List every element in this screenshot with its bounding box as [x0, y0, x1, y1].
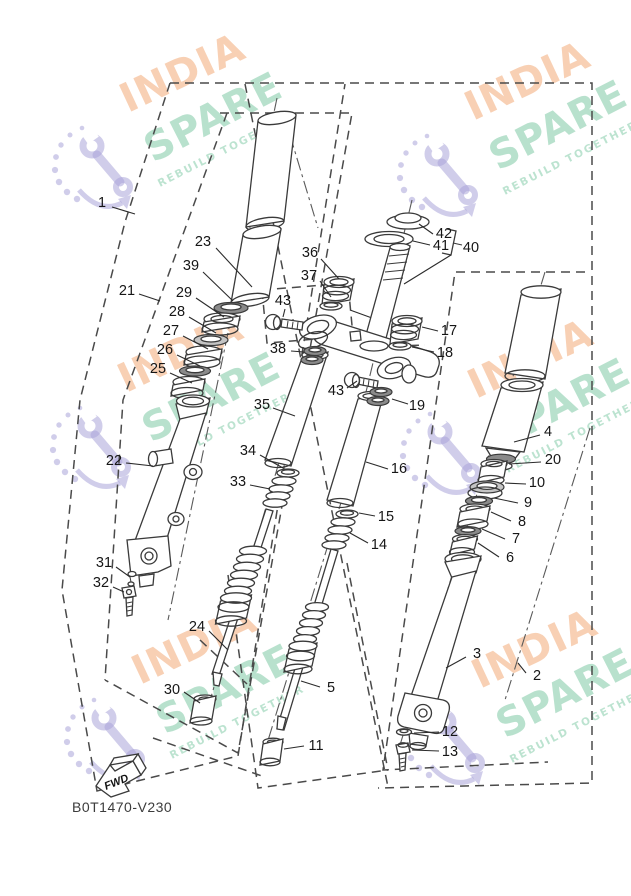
- callout-23: 23: [195, 234, 211, 250]
- callout-3: 3: [473, 646, 481, 662]
- leader-line-9: [494, 498, 518, 503]
- callout-37: 37: [301, 268, 317, 284]
- callout-29: 29: [176, 285, 192, 301]
- callout-33: 33: [230, 474, 246, 490]
- callout-12: 12: [442, 724, 458, 740]
- callout-20: 20: [545, 452, 561, 468]
- leader-line-14: [350, 533, 368, 543]
- leader-line-17: [422, 327, 438, 331]
- callout-2: 2: [533, 668, 541, 684]
- exploded-parts-drawing: INDIA SPARE REBUILD TOGETHER: [0, 0, 631, 896]
- leader-line-41: [413, 241, 430, 245]
- leader-line-43: [283, 309, 285, 317]
- callout-40: 40: [463, 240, 479, 256]
- axle-pin-and-bolt-left: [122, 572, 136, 617]
- leader-line-1: [112, 207, 135, 214]
- callout-22: 22: [106, 453, 122, 469]
- leader-line-8: [491, 512, 511, 521]
- callout-19: 19: [409, 398, 425, 414]
- leader-line-33: [250, 485, 270, 489]
- callout-26: 26: [157, 342, 173, 358]
- leader-line-16: [366, 462, 388, 469]
- callout-14: 14: [371, 537, 387, 553]
- fwd-arrow: FWD: [96, 754, 146, 797]
- leader-line-6: [478, 543, 499, 557]
- leader-line-7: [482, 529, 505, 539]
- callout-27: 27: [163, 323, 179, 339]
- leader-line-10: [505, 483, 526, 484]
- callout-34: 34: [240, 443, 256, 459]
- drawing-code: B0T1470-V230: [72, 799, 172, 815]
- leader-line-19: [392, 399, 408, 404]
- fork-cap-left: [320, 277, 354, 311]
- callout-9: 9: [524, 495, 532, 511]
- leader-line-21: [139, 294, 160, 301]
- pinch-bolt-upper: [266, 315, 304, 331]
- callout-43: 43: [275, 293, 291, 309]
- callout-17: 17: [441, 323, 457, 339]
- callout-38: 38: [270, 341, 286, 357]
- callout-8: 8: [518, 514, 526, 530]
- leader-line-15: [359, 513, 375, 516]
- callout-31: 31: [96, 555, 112, 571]
- callout-10: 10: [529, 475, 545, 491]
- callout-30: 30: [164, 682, 180, 698]
- leader-line-11: [284, 746, 304, 749]
- callout-35: 35: [254, 397, 270, 413]
- callout-41: 41: [433, 238, 449, 254]
- callout-16: 16: [391, 461, 407, 477]
- watermark-layer: [50, 24, 631, 785]
- callout-43: 43: [328, 383, 344, 399]
- callout-32: 32: [93, 575, 109, 591]
- leader-line-31: [116, 567, 130, 577]
- callout-1: 1: [98, 195, 106, 211]
- callout-25: 25: [150, 361, 166, 377]
- callout-5: 5: [327, 680, 335, 696]
- callout-15: 15: [378, 509, 394, 525]
- callout-11: 11: [308, 738, 323, 754]
- callout-18: 18: [437, 345, 453, 361]
- callout-21: 21: [119, 283, 135, 299]
- callout-7: 7: [512, 531, 520, 547]
- callout-4: 4: [544, 424, 552, 440]
- callout-39: 39: [183, 258, 199, 274]
- callout-6: 6: [506, 550, 514, 566]
- callout-28: 28: [169, 304, 185, 320]
- parts-diagram-page: INDIA SPARE REBUILD TOGETHER: [0, 0, 631, 896]
- leader-line-5: [301, 681, 320, 687]
- callout-13: 13: [442, 744, 458, 760]
- callout-24: 24: [189, 619, 205, 635]
- leader-line-39: [203, 272, 233, 301]
- leader-line-13: [412, 750, 439, 751]
- callout-36: 36: [302, 245, 318, 261]
